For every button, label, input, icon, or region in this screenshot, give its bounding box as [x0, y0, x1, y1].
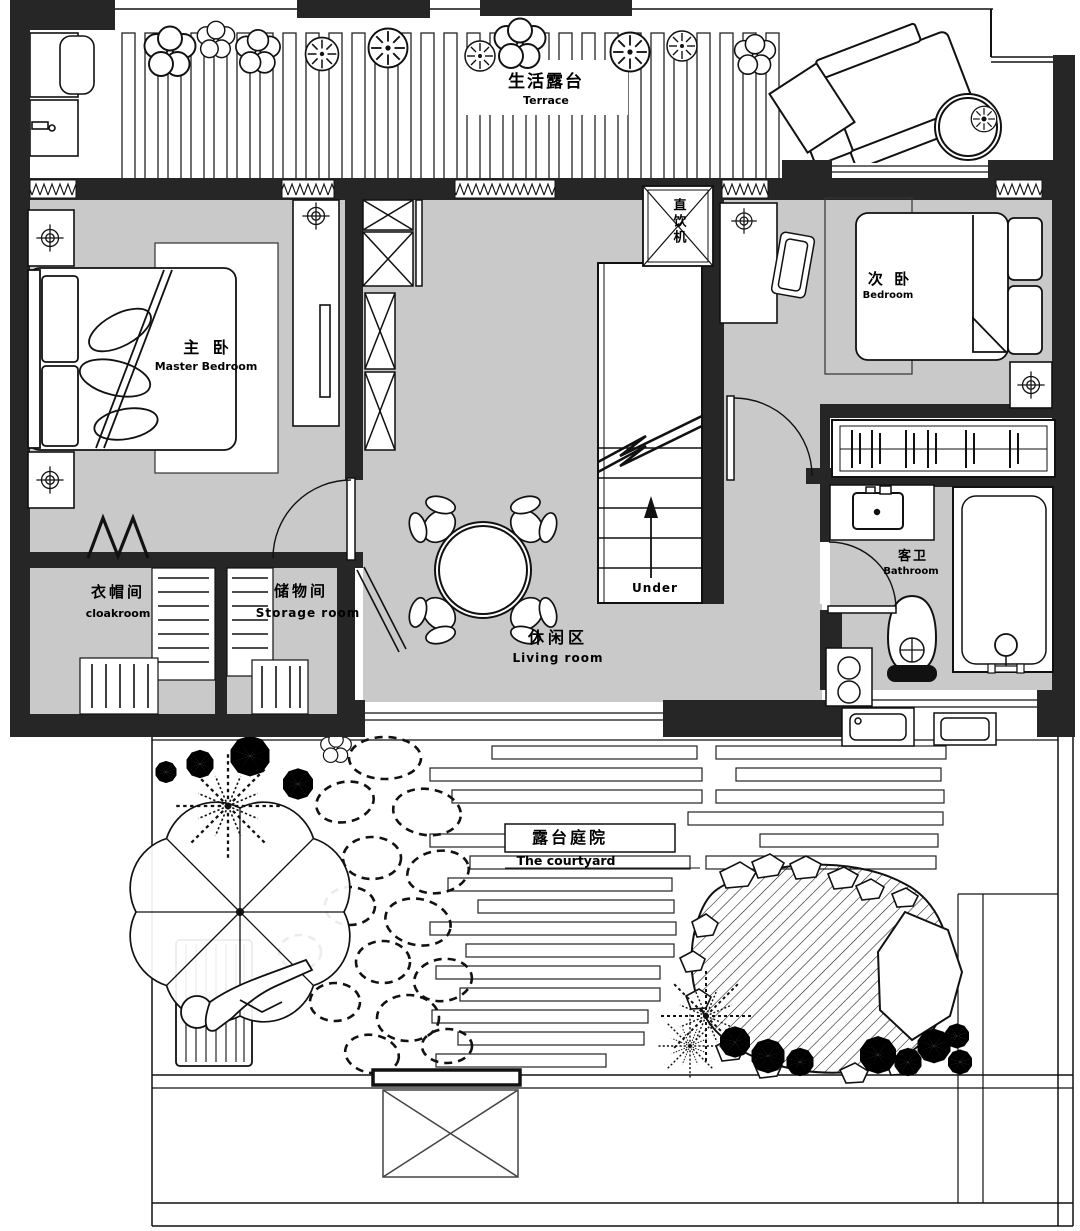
- planter-box: [373, 1070, 520, 1085]
- tree-icon: [236, 30, 280, 73]
- living-room-window: [365, 702, 663, 735]
- shrub-icon: [465, 41, 495, 71]
- living-room-label-en: Living room: [513, 652, 604, 664]
- master-bed: [28, 268, 236, 450]
- terrace-label-en: Terrace: [523, 95, 569, 106]
- skylight-box: [383, 1090, 518, 1177]
- master-wardrobe: [293, 200, 339, 426]
- patio-umbrella: [130, 802, 350, 1066]
- second-bedroom-label-en: Bedroom: [863, 291, 914, 301]
- courtyard: [130, 733, 1073, 1226]
- tree-icon: [321, 733, 352, 763]
- shrub-fan-icon: [155, 761, 176, 783]
- cloakroom-label-zh: 衣帽间: [91, 585, 145, 600]
- shrub-icon: [667, 31, 697, 61]
- floor-plan-drawing: [0, 0, 1080, 1231]
- tree-icon: [145, 27, 196, 77]
- shrub-icon: [611, 33, 650, 72]
- second-bedroom-label-zh: 次 卧: [868, 272, 912, 287]
- floor-plan: 生活露台 Terrace 主 卧 Master Bedroom 次 卧 Bedr…: [0, 0, 1080, 1231]
- master-bedroom-label-en: Master Bedroom: [155, 361, 258, 372]
- vanity-sink: [830, 485, 934, 540]
- shrub-icon: [369, 29, 408, 68]
- courtyard-label-en: The courtyard: [517, 855, 616, 868]
- tree-icon: [495, 19, 546, 69]
- laundry-appliances: [30, 33, 94, 156]
- tree-icon: [197, 21, 234, 57]
- terrace-window: [832, 163, 988, 175]
- shrub-fan-icon: [186, 750, 213, 778]
- laundry-stack: [826, 648, 872, 706]
- water-dispenser-label: 直饮机: [672, 198, 685, 246]
- table-plant-icon: [971, 106, 997, 132]
- shrub-fan-icon: [948, 1049, 972, 1074]
- storage-label-en: Storage room: [256, 607, 360, 619]
- stairs-under-label: Under: [632, 582, 678, 594]
- hall-wardrobe: [832, 420, 1055, 477]
- courtyard-label-zh: 露台庭院: [532, 830, 608, 846]
- bathroom-label-en: Bathroom: [883, 567, 938, 577]
- terrace-label-zh: 生活露台: [508, 74, 584, 91]
- master-bedroom-label-zh: 主 卧: [183, 340, 233, 356]
- living-room-label-zh: 休闲区: [528, 630, 588, 646]
- bathroom-label-zh: 客卫: [898, 550, 928, 563]
- terrace-lounge-set: [769, 13, 1001, 182]
- tree-icon: [735, 35, 776, 75]
- bathtub: [953, 487, 1053, 673]
- cloakroom-label-en: cloakroom: [86, 608, 151, 619]
- storage-label-zh: 储物间: [274, 584, 328, 599]
- shrub-icon: [306, 38, 339, 71]
- shrub-fan-icon: [283, 768, 313, 800]
